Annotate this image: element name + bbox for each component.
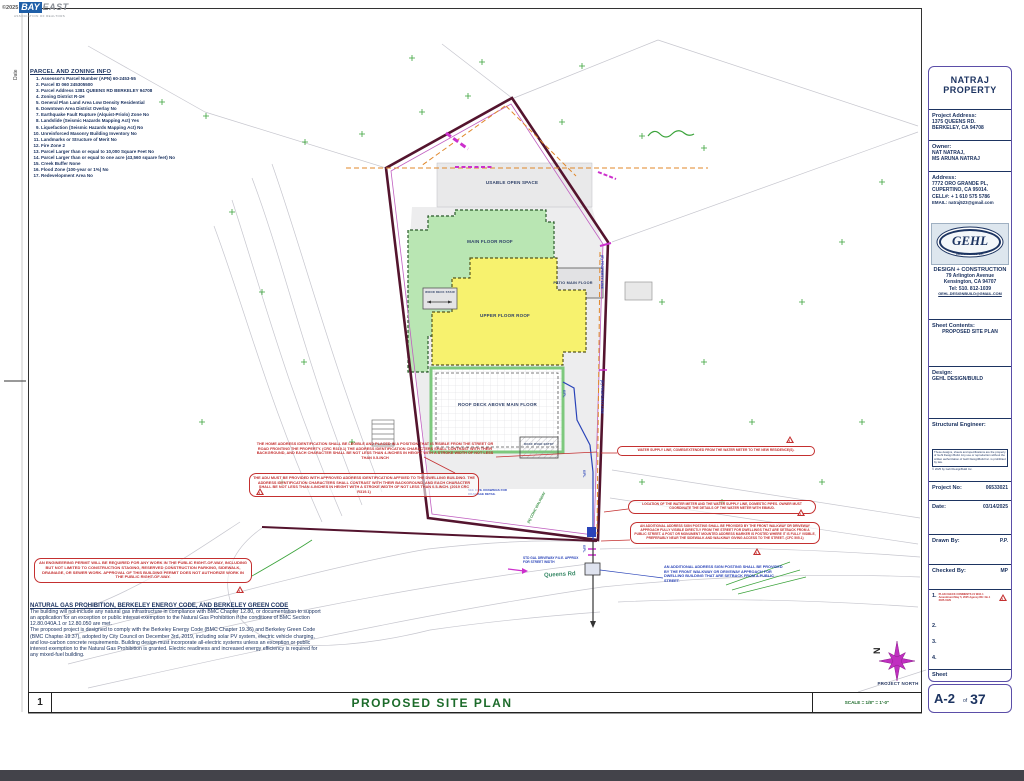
dimension-label-1: 6'/PL — [562, 390, 566, 398]
additional-address-blue-note: AN ADDITIONAL ADDRESS SIGN POSTING SHALL… — [664, 565, 788, 584]
sheet-contents-value: PROPOSED SITE PLAN — [932, 329, 1008, 335]
title-block: NATRAJ PROPERTY Project Address: 1375 QU… — [928, 66, 1012, 682]
sheet-label: Sheet — [932, 672, 1008, 678]
drawing-scale: SCALE = 1/8" = 1'-0" — [812, 693, 921, 712]
driveway-note: STD GAL DRIVEWAY P.U.E. APPROX FOR STREE… — [523, 556, 585, 564]
divider — [929, 564, 1011, 565]
adu-address-note: THE ADU MUST BE PROVIDED WITH APPROVED A… — [249, 473, 479, 497]
property-line-note-1: (E) PROPERTY LINE — [600, 255, 604, 289]
divider — [929, 171, 1011, 172]
parcel-info-title: PARCEL AND ZONING INFO — [30, 69, 206, 75]
gehl-logo-subtext: DESIGN BUILD Inc. — [932, 252, 1008, 256]
divider — [929, 481, 1011, 482]
revision-triangle-icon: 1 — [999, 594, 1007, 601]
structural-engineer-label: Structural Engineer: — [932, 422, 1008, 428]
checked-by-value: MP — [1001, 568, 1009, 574]
date-value: 03/14/2025 — [983, 504, 1008, 510]
neighbor-structure — [625, 282, 652, 300]
divider — [929, 589, 1011, 590]
patio-main-floor-label: PATIO MAIN FLOOR — [538, 281, 608, 285]
drawing-number: 1 — [29, 693, 52, 712]
upper-floor-roof-label: UPPER FLOOR ROOF — [455, 313, 555, 318]
project-address-line2: BERKELEY, CA 94708 — [932, 125, 1008, 131]
viewer-bottom-bar — [0, 770, 1024, 781]
logo-bay: BAY — [19, 2, 41, 13]
divider — [929, 366, 1011, 367]
revision-triangle-icon: 1 — [236, 586, 244, 593]
project-no-label: Project No: — [932, 485, 962, 491]
edge-date-label: Date — [13, 69, 19, 80]
parcel-zoning-info: PARCEL AND ZONING INFO Assessor's Parcel… — [30, 69, 206, 179]
natural-gas-note: NATURAL GAS PROHIBITION, BERKELEY ENERGY… — [30, 603, 322, 658]
wood-deck-label: WOOD DECK STAIR — [423, 290, 457, 294]
sheet-number: A-2 — [934, 691, 955, 706]
date-label: Date: — [932, 504, 946, 510]
engineering-permit-note: AN ENGINEERING PERMIT WILL BE REQUIRED F… — [34, 558, 252, 583]
bayeast-logo: ©2025 BAY EAST — [2, 2, 69, 13]
svg-text:N: N — [872, 648, 882, 655]
main-floor-roof-label: MAIN FLOOR ROOF — [440, 239, 540, 244]
revision-triangle-icon: 1 — [256, 488, 264, 495]
checked-by-label: Checked By: — [932, 568, 966, 574]
revision-triangle-icon: 1 — [797, 509, 805, 516]
divider — [929, 418, 1011, 419]
parcel-item: Redevelopment Area No — [41, 173, 206, 179]
divider — [929, 500, 1011, 501]
roof-over-entry-label: ROOF OVER ENTRY — [521, 442, 557, 446]
additional-address-red-note: AN ADDITIONAL ADDRESS SIGN POSTING SHALL… — [630, 522, 820, 544]
title-bar: 1 PROPOSED SITE PLAN SCALE = 1/8" = 1'-0… — [28, 692, 922, 713]
logo-tagline: ASSOCIATION OF REALTORS — [14, 14, 65, 18]
gehl-logo: GEHL DESIGN BUILD Inc. — [931, 223, 1009, 265]
divider — [929, 140, 1011, 141]
water-meter-note: LOCATION OF THE WATER METER AND THE WATE… — [628, 500, 816, 514]
copyright-text: ©2025 — [2, 5, 18, 11]
home-address-note: THE HOME ADDRESS IDENTIFICATION SHALL BE… — [252, 442, 498, 460]
disclaimer-text: These designs, sheets and specifications… — [932, 449, 1008, 467]
gas-note-para2: The proposed project is designed to comp… — [30, 627, 322, 658]
gas-note-para1: The building will not include any natura… — [30, 609, 322, 627]
design-value: GEHL DESIGN/BUILD — [932, 376, 1008, 382]
drawing-title: PROPOSED SITE PLAN — [52, 693, 812, 712]
project-no-value: 06533021 — [986, 485, 1008, 491]
magenta-arrowhead — [522, 568, 528, 574]
firm-email: GEHL.DESIGNBUILD@GMAIL.COM — [932, 292, 1008, 297]
drawn-by-value: P.P. — [1000, 538, 1008, 544]
compass-north-icon: N — [872, 641, 915, 681]
revision-4-number: 4. — [932, 655, 937, 661]
sheet-total: 37 — [970, 691, 986, 707]
parcel-info-list: Assessor's Parcel Number (APN) 60-2453-5… — [30, 76, 206, 179]
drawn-by-label: Drawn By: — [932, 538, 960, 544]
revision-triangle-icon: 1 — [786, 436, 794, 443]
revision-triangle-icon: 1 — [753, 548, 761, 555]
disclaimer-copyright: © 2025 by Gehl DesignBuild Inc. — [932, 467, 1008, 471]
sheet-number-box: A-2 of 37 — [928, 684, 1012, 713]
usable-open-space-label: USABLE OPEN SPACE — [452, 180, 572, 185]
address-line4: EMAIL: natraj523@gmail.com — [932, 200, 1008, 206]
revision-2-number: 2. — [932, 623, 937, 629]
water-supply-note: WATER SUPPLY LINE, COMES/EXTENDED FROM T… — [617, 446, 815, 456]
sheet-canvas: N ©2025 BAY EAST ASSOCIATION OF REALTORS… — [0, 0, 1024, 781]
property-title: NATRAJ PROPERTY — [932, 75, 1008, 96]
project-north-label: PROJECT NORTH — [868, 681, 928, 686]
owner-line2: MS ARUNA NATRAJ — [932, 156, 1008, 162]
revision-3-number: 3. — [932, 639, 937, 645]
revision-1-number: 1. — [932, 593, 937, 603]
property-line-note-2: (E) PROPERTY LINE — [600, 380, 604, 414]
divider — [929, 109, 1011, 110]
sheet-of: of — [963, 698, 967, 704]
revision-1-text: PLAN CHECK COMMENTS #1 With 1 Amendment … — [939, 593, 995, 603]
gehl-logo-text: GEHL — [941, 231, 999, 251]
dimension-label-2: 6'/PL — [582, 470, 586, 478]
roof-deck-label: ROOF DECK ABOVE MAIN FLOOR — [440, 402, 555, 407]
divider — [929, 669, 1011, 670]
divider — [929, 534, 1011, 535]
dimension-label-3: 6'/PL — [582, 545, 586, 553]
tree-scribble — [648, 131, 694, 137]
divider — [929, 319, 1011, 320]
logo-east: EAST — [43, 2, 69, 13]
